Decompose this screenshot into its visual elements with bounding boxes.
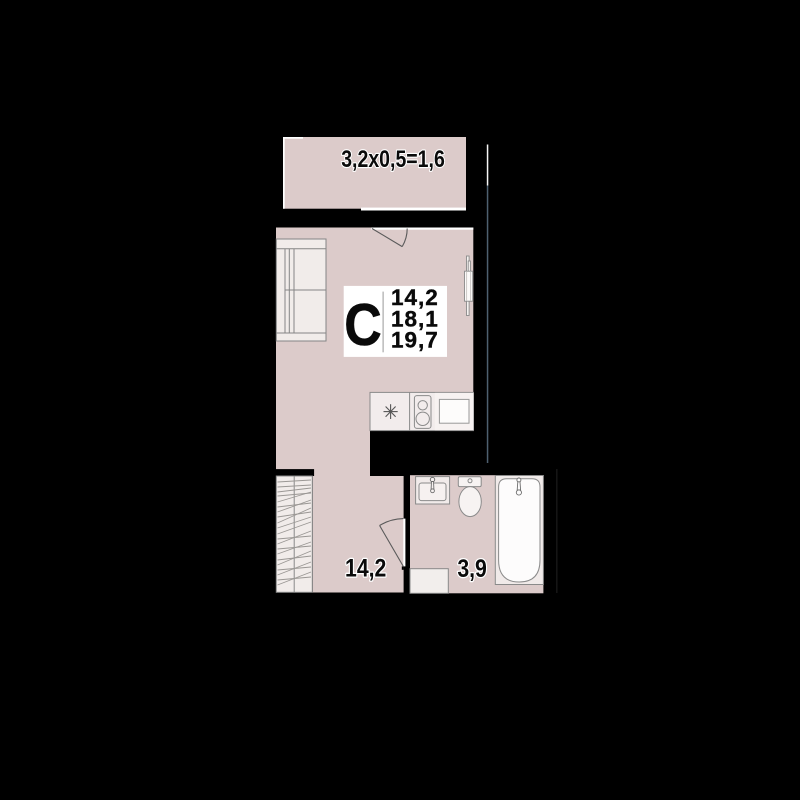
svg-text:3,2x0,5=1,6: 3,2x0,5=1,6 <box>341 145 445 172</box>
svg-text:14,2: 14,2 <box>345 554 386 582</box>
svg-text:19,7: 19,7 <box>391 328 439 353</box>
svg-text:3,9: 3,9 <box>457 555 487 583</box>
svg-text:C: C <box>344 292 382 358</box>
